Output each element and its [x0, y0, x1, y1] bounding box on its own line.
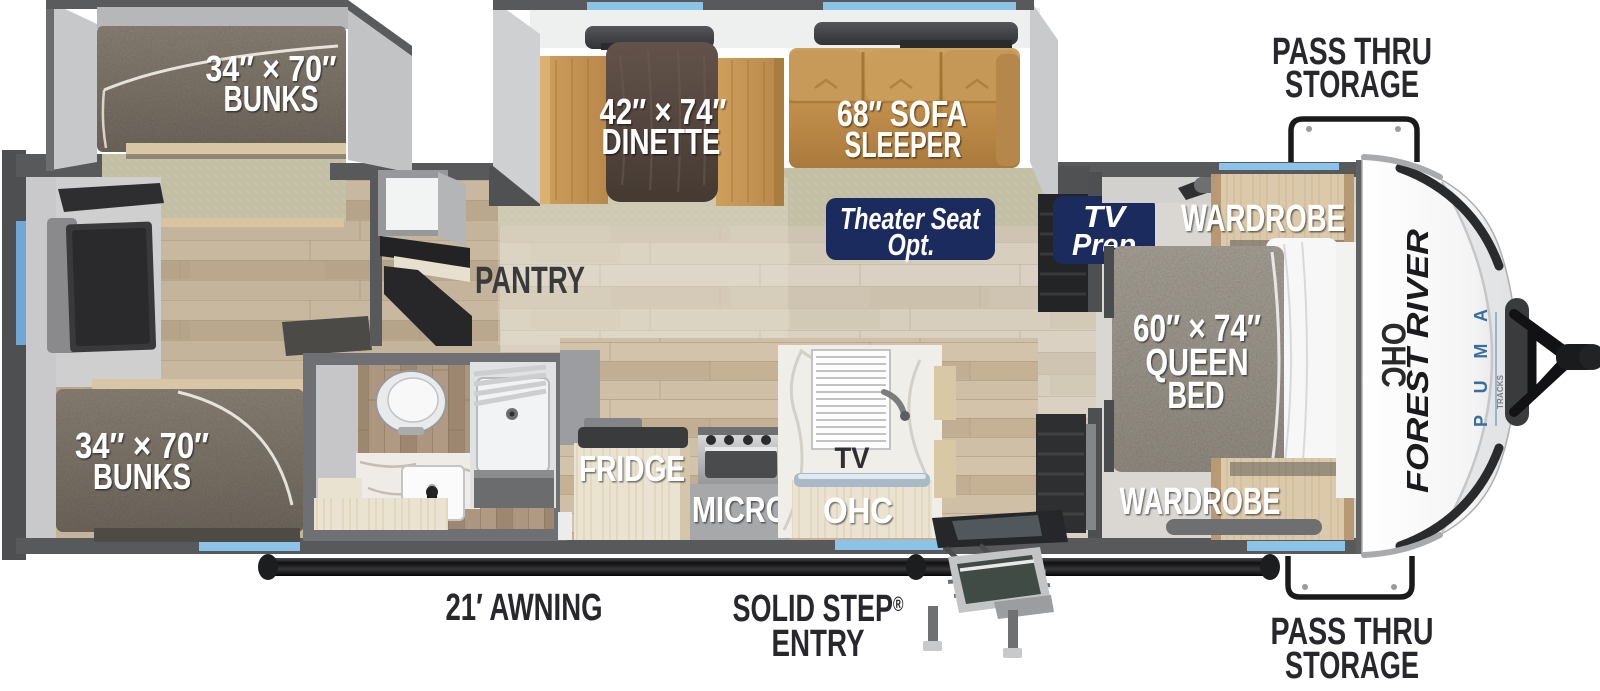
svg-text:WARDROBE: WARDROBE [1120, 481, 1281, 523]
svg-text:PANTRY: PANTRY [475, 260, 585, 302]
svg-text:TV: TV [835, 442, 870, 475]
svg-text:OHC: OHC [823, 490, 893, 531]
svg-text:TRACKS: TRACKS [1496, 374, 1505, 409]
svg-text:BUNKS: BUNKS [224, 78, 319, 119]
svg-text:BED: BED [1168, 375, 1225, 417]
svg-text:WARDROBE: WARDROBE [1181, 198, 1345, 240]
svg-text:MICRO: MICRO [692, 489, 788, 530]
svg-text:STORAGE: STORAGE [1285, 64, 1419, 106]
svg-text:ENTRY: ENTRY [772, 623, 865, 665]
svg-text:21′ AWNING: 21′ AWNING [446, 587, 603, 629]
svg-text:FRIDGE: FRIDGE [579, 448, 685, 489]
svg-text:STORAGE: STORAGE [1285, 645, 1419, 687]
svg-text:SLEEPER: SLEEPER [845, 124, 962, 165]
svg-text:Opt.: Opt. [888, 227, 935, 262]
svg-text:FOREST RIVER: FOREST RIVER [1400, 228, 1435, 493]
svg-text:DINETTE: DINETTE [602, 121, 721, 162]
svg-text:BUNKS: BUNKS [93, 456, 191, 497]
